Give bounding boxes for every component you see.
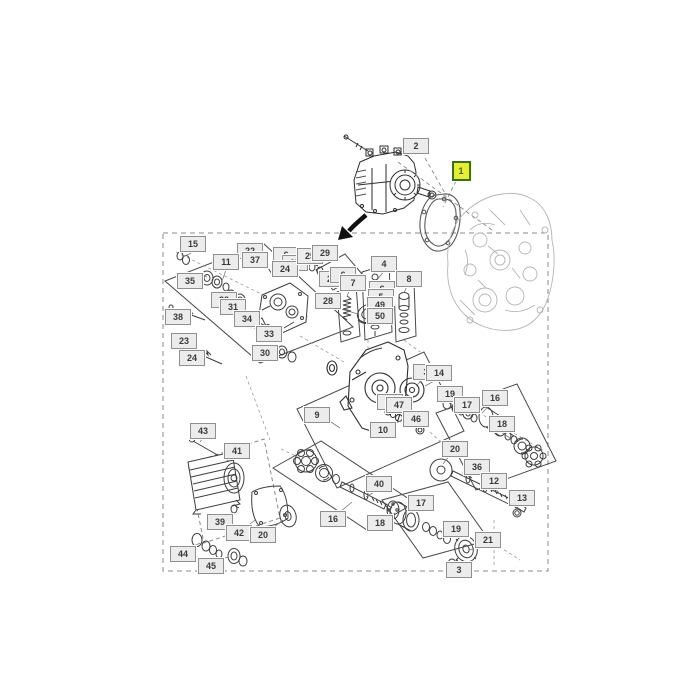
callout-12-43[interactable]: 12 <box>481 473 507 489</box>
callout-19-56[interactable]: 19 <box>443 521 469 537</box>
callout-17-55[interactable]: 17 <box>408 495 434 511</box>
callout-28-26[interactable]: 28 <box>315 293 341 309</box>
callout-20-41[interactable]: 20 <box>442 441 468 457</box>
callout-4-15[interactable]: 4 <box>371 256 397 272</box>
callout-15-2[interactable]: 15 <box>180 236 206 252</box>
callout-38-23[interactable]: 38 <box>165 309 191 325</box>
callout-20-49[interactable]: 20 <box>250 527 276 543</box>
callout-37-4[interactable]: 37 <box>242 252 268 268</box>
callout-24-28[interactable]: 24 <box>179 350 205 366</box>
callout-42-48[interactable]: 42 <box>226 525 252 541</box>
callout-14-32[interactable]: 14 <box>426 365 452 381</box>
callout-24-9[interactable]: 24 <box>272 261 298 277</box>
callout-29-11[interactable]: 29 <box>312 245 338 261</box>
callout-44-50[interactable]: 44 <box>170 546 196 562</box>
callout-40-53[interactable]: 40 <box>366 476 392 492</box>
callout-layer: 2115223711356272425292667486549503231383… <box>0 0 700 700</box>
callout-17-38[interactable]: 17 <box>454 397 480 413</box>
callout-16-52[interactable]: 16 <box>320 511 346 527</box>
callout-13-44[interactable]: 13 <box>509 490 535 506</box>
callout-21-57[interactable]: 21 <box>475 532 501 548</box>
callout-3-58[interactable]: 3 <box>446 562 472 578</box>
callout-34-24[interactable]: 34 <box>234 311 260 327</box>
callout-18-54[interactable]: 18 <box>367 515 393 531</box>
callout-7-14[interactable]: 7 <box>340 275 366 291</box>
callout-35-6[interactable]: 35 <box>177 273 203 289</box>
callout-2-0[interactable]: 2 <box>403 138 429 154</box>
callout-41-46[interactable]: 41 <box>224 443 250 459</box>
callout-1-highlighted-1[interactable]: 1 <box>452 161 471 181</box>
parts-diagram-page: 2115223711356272425292667486549503231383… <box>0 0 700 700</box>
callout-9-30[interactable]: 9 <box>304 407 330 423</box>
callout-18-40[interactable]: 18 <box>489 416 515 432</box>
callout-33-25[interactable]: 33 <box>256 326 282 342</box>
callout-43-45[interactable]: 43 <box>190 423 216 439</box>
callout-30-29[interactable]: 30 <box>252 345 278 361</box>
callout-50-20[interactable]: 50 <box>367 308 393 324</box>
callout-23-27[interactable]: 23 <box>171 333 197 349</box>
callout-11-5[interactable]: 11 <box>213 254 239 270</box>
callout-46-35[interactable]: 46 <box>403 411 429 427</box>
callout-10-36[interactable]: 10 <box>370 422 396 438</box>
callout-8-16[interactable]: 8 <box>396 271 422 287</box>
callout-45-51[interactable]: 45 <box>198 558 224 574</box>
callout-16-39[interactable]: 16 <box>482 390 508 406</box>
